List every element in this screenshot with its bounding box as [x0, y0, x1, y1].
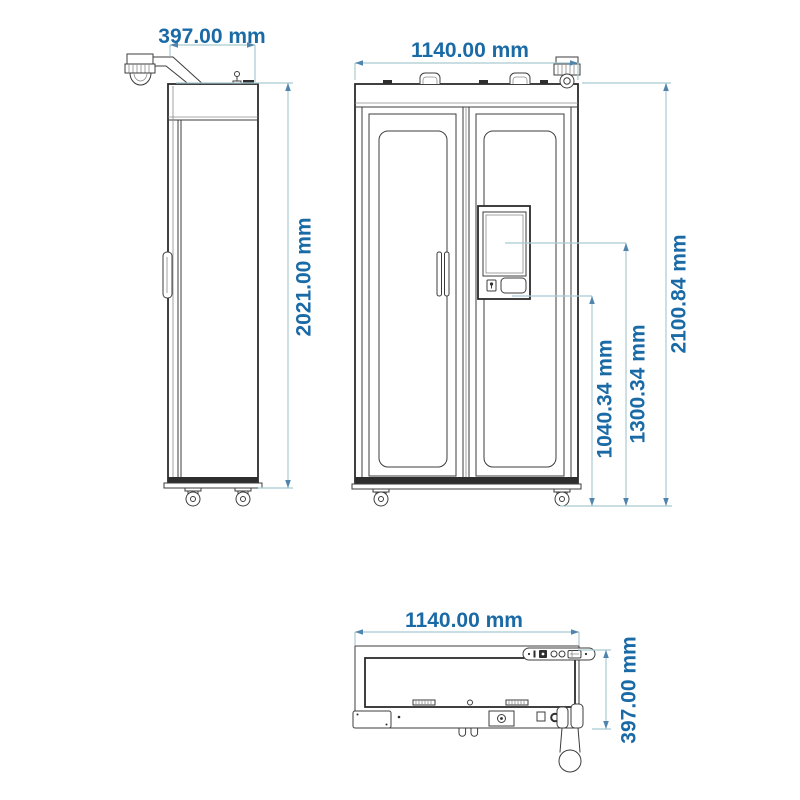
side-cabinet-outline — [168, 84, 258, 483]
front-view — [352, 57, 581, 506]
front-width-label: 1140.00 mm — [411, 39, 529, 62]
touchscreen — [483, 212, 526, 276]
switch-port — [537, 712, 545, 721]
power-port — [489, 711, 514, 726]
vent-slot — [506, 700, 528, 705]
left-door — [369, 114, 456, 476]
cable-clips — [459, 728, 478, 736]
roof-antenna — [233, 72, 241, 85]
side-height-label: 2021.00 mm — [292, 217, 315, 336]
top-view — [353, 646, 595, 772]
top-width-label: 1140.00 mm — [405, 609, 523, 632]
small-screw — [398, 716, 401, 719]
caster-wheel — [373, 489, 389, 506]
lock-icon — [487, 280, 496, 291]
caster-wheel — [235, 488, 251, 506]
screen-center-height-label: 1300.34 mm — [626, 324, 649, 443]
front-base — [352, 477, 581, 489]
caster-wheel — [554, 489, 570, 506]
lifting-handle — [420, 73, 440, 84]
total-height-label: 2100.84 mm — [667, 234, 690, 353]
side-view — [125, 54, 262, 506]
lifting-handle — [510, 73, 530, 84]
touchscreen-kiosk-panel — [478, 206, 530, 299]
screen-bottom-height-label: 1040.34 mm — [593, 339, 616, 458]
side-door-handle — [163, 252, 172, 298]
dim-front-width — [355, 60, 578, 80]
card-slot — [501, 278, 526, 293]
roof-fitting — [540, 80, 548, 84]
dome-camera — [130, 73, 151, 85]
technical-drawing-canvas: 397.00 mm 2021.00 mm 1140.00 mm 1040.34 … — [0, 0, 800, 800]
junction-box — [353, 711, 391, 728]
vent-slot — [413, 700, 435, 705]
roof-fitting — [479, 80, 488, 84]
top-depth-label: 397.00 mm — [617, 636, 640, 743]
roof-fitting — [383, 80, 392, 84]
side-depth-label: 397.00 mm — [158, 25, 265, 48]
caster-wheel — [185, 488, 201, 506]
side-base — [164, 477, 262, 488]
